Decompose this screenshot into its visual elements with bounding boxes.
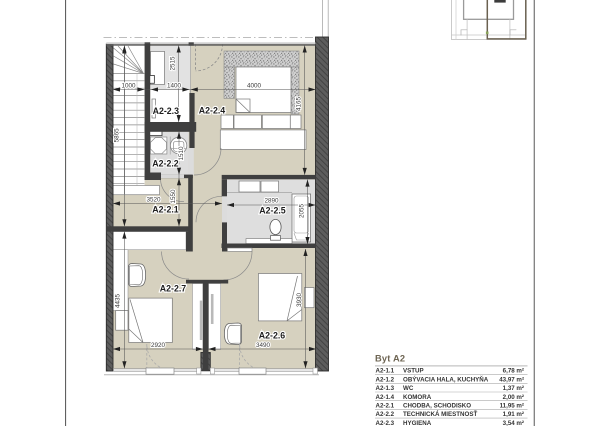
svg-text:A2-1.2: A2-1.2 bbox=[376, 376, 395, 383]
svg-text:CHODBA, SCHODISKO: CHODBA, SCHODISKO bbox=[403, 403, 471, 410]
svg-text:A2-2.7: A2-2.7 bbox=[160, 284, 187, 294]
svg-text:4435: 4435 bbox=[114, 294, 121, 309]
svg-text:11,95 m²: 11,95 m² bbox=[500, 403, 524, 410]
svg-text:3,54 m²: 3,54 m² bbox=[503, 420, 524, 426]
svg-text:4165: 4165 bbox=[295, 97, 302, 112]
svg-text:4000: 4000 bbox=[247, 82, 262, 89]
svg-text:A2-1.1: A2-1.1 bbox=[376, 368, 395, 375]
svg-text:TECHNICKÁ MIESTNOSŤ: TECHNICKÁ MIESTNOSŤ bbox=[403, 410, 477, 418]
svg-text:HYGIENA: HYGIENA bbox=[403, 420, 432, 426]
svg-text:5865: 5865 bbox=[114, 128, 121, 143]
svg-text:2055: 2055 bbox=[298, 204, 305, 219]
svg-text:3520: 3520 bbox=[146, 196, 161, 203]
svg-text:1,91 m²: 1,91 m² bbox=[503, 411, 524, 418]
svg-text:KOMORA: KOMORA bbox=[403, 394, 432, 401]
svg-text:A2-2.3: A2-2.3 bbox=[153, 106, 180, 116]
svg-text:A2-2.4: A2-2.4 bbox=[199, 106, 226, 116]
svg-text:VSTUP: VSTUP bbox=[403, 368, 424, 375]
svg-text:A2-2.6: A2-2.6 bbox=[259, 331, 286, 341]
svg-text:43,97 m²: 43,97 m² bbox=[499, 376, 524, 383]
svg-text:3930: 3930 bbox=[296, 293, 303, 308]
svg-text:A2-1.4: A2-1.4 bbox=[376, 394, 395, 401]
svg-text:1510: 1510 bbox=[178, 146, 185, 161]
svg-text:1400: 1400 bbox=[167, 83, 182, 90]
svg-text:A2-2.1: A2-2.1 bbox=[152, 205, 179, 215]
svg-text:3490: 3490 bbox=[256, 342, 271, 349]
svg-text:A2-2.2: A2-2.2 bbox=[376, 411, 395, 418]
svg-text:1550: 1550 bbox=[170, 189, 177, 204]
svg-text:A2-2.1: A2-2.1 bbox=[376, 403, 395, 410]
svg-text:A2-2.3: A2-2.3 bbox=[376, 420, 395, 426]
svg-text:2890: 2890 bbox=[264, 198, 279, 205]
svg-text:1000: 1000 bbox=[121, 82, 136, 89]
svg-text:Byt A2: Byt A2 bbox=[375, 354, 405, 364]
svg-text:A2-1.3: A2-1.3 bbox=[376, 385, 395, 392]
svg-text:2920: 2920 bbox=[151, 342, 166, 349]
svg-text:2,00 m²: 2,00 m² bbox=[503, 394, 524, 401]
svg-text:2515: 2515 bbox=[169, 56, 176, 71]
svg-text:1,37 m²: 1,37 m² bbox=[503, 385, 524, 392]
svg-text:A2-2.2: A2-2.2 bbox=[152, 159, 179, 169]
svg-text:WC: WC bbox=[403, 385, 414, 392]
svg-text:A2-2.5: A2-2.5 bbox=[259, 206, 286, 216]
svg-text:6,78 m²: 6,78 m² bbox=[503, 368, 524, 375]
svg-text:OBÝVACIA HALA, KUCHYŇA: OBÝVACIA HALA, KUCHYŇA bbox=[403, 375, 489, 383]
